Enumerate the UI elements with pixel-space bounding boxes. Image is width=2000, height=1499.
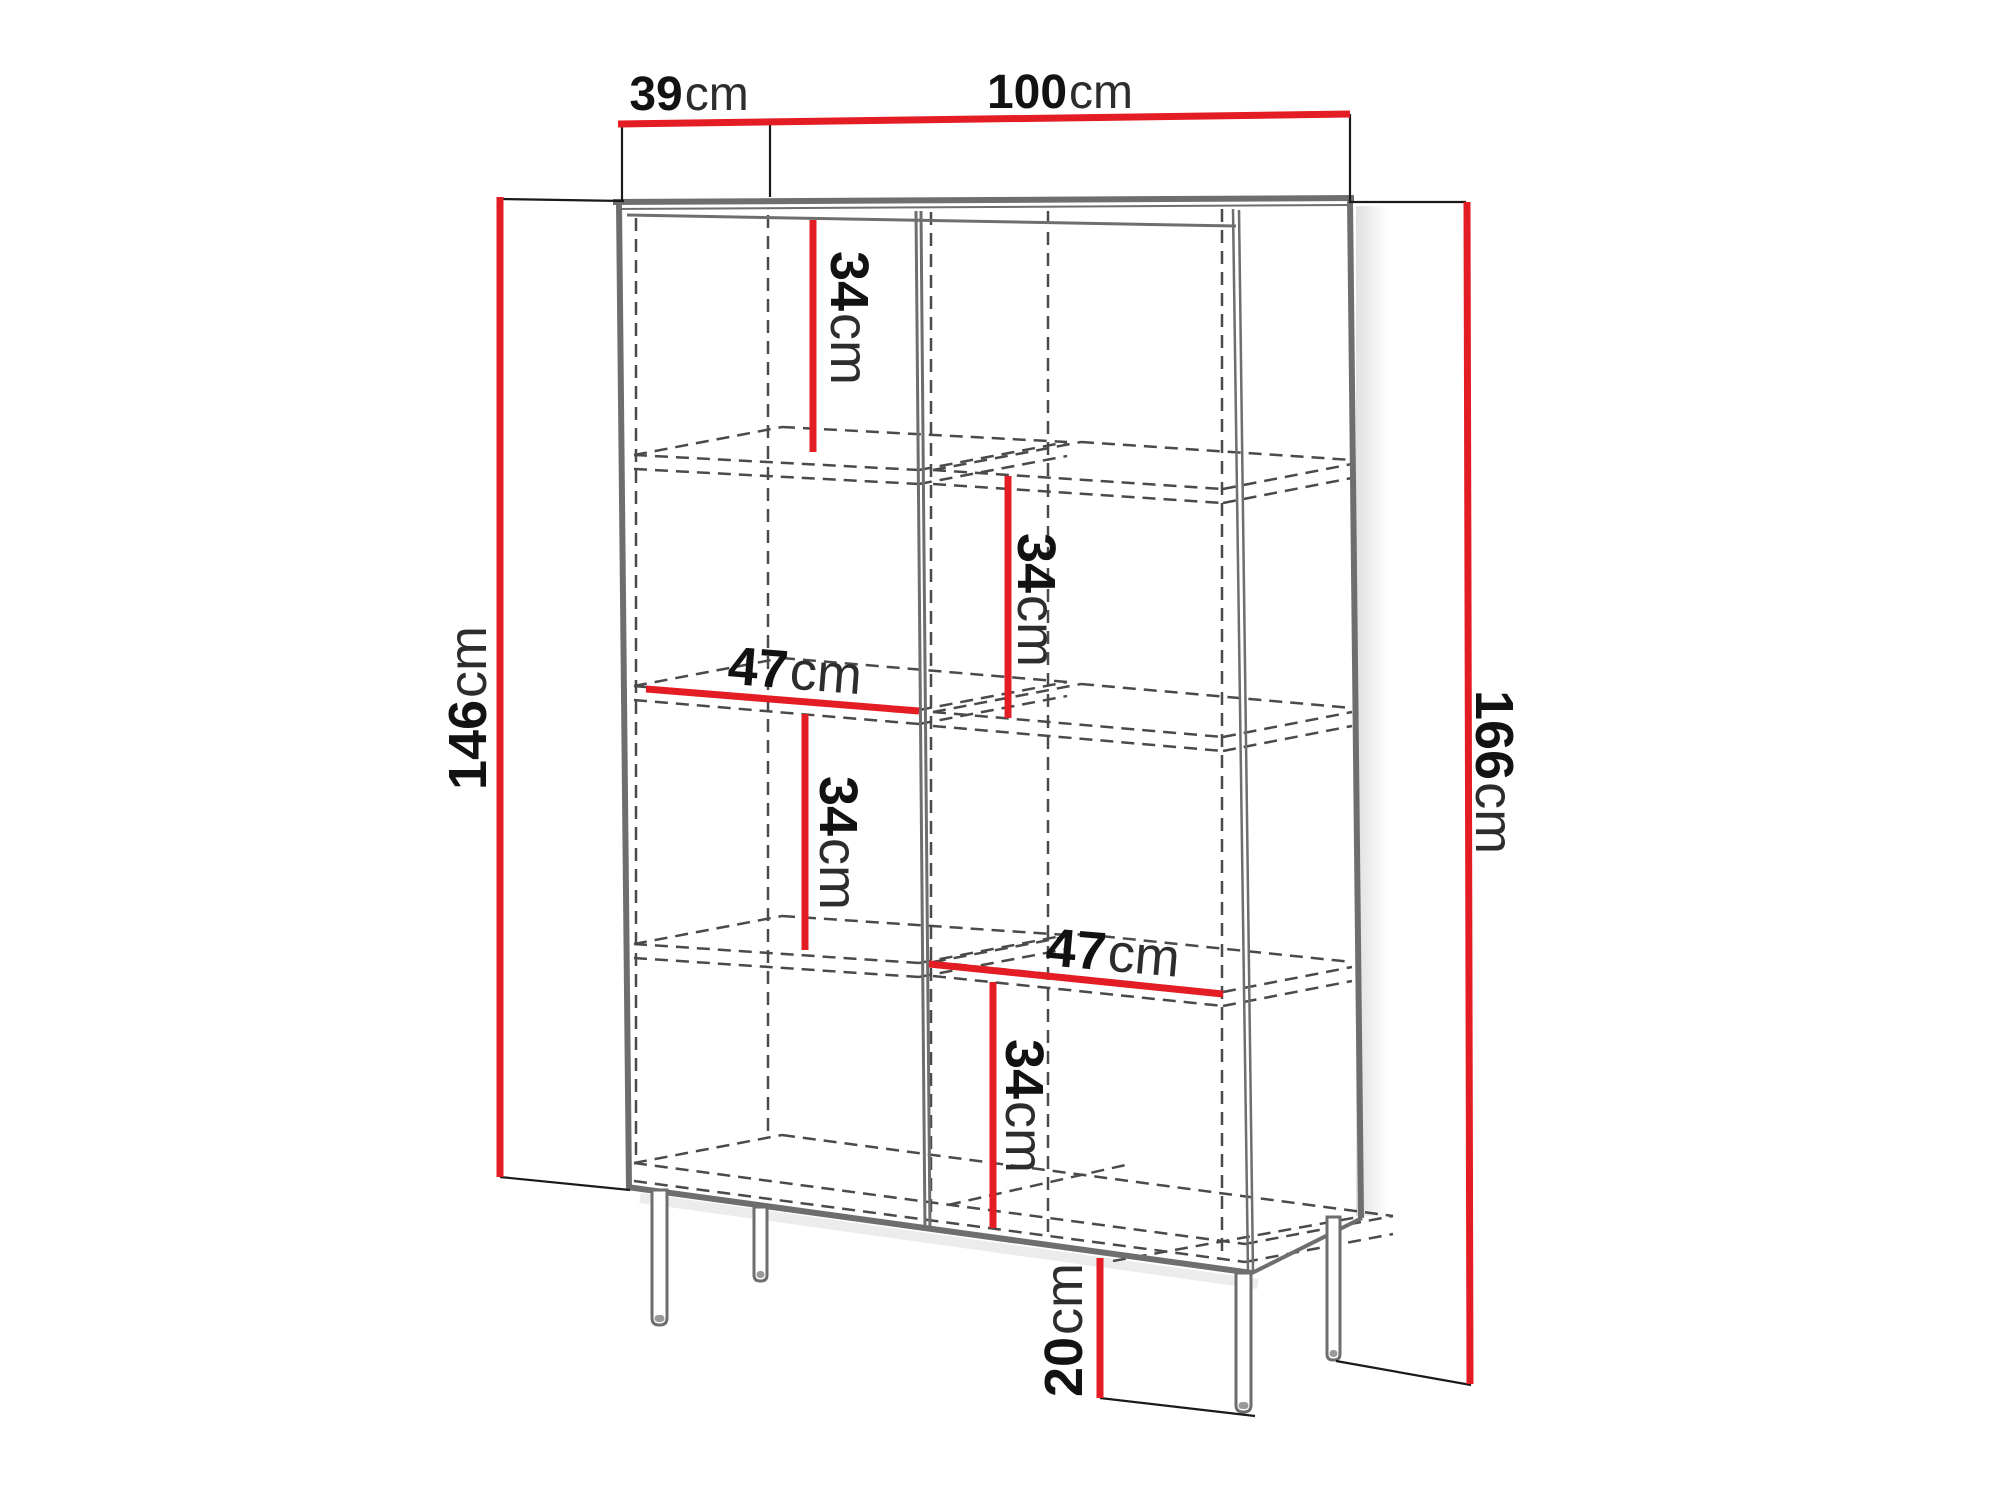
furniture-dimension-diagram: 39cm100cm146cm166cm34cm34cm34cm34cm47cm4…: [0, 0, 2000, 1499]
front-right-leg-foot-cap: [1239, 1402, 1249, 1409]
dimension-label-depth: 39cm: [629, 68, 748, 121]
rear-right-leg-foot-cap: [1330, 1350, 1338, 1357]
dimension-label-shelf-a: 34cm: [819, 251, 879, 385]
cabinet-diagram-svg: 39cm100cm146cm166cm34cm34cm34cm34cm47cm4…: [0, 0, 2000, 1499]
cabinet-rear-left-leg: [754, 1207, 767, 1281]
dimension-label-shelf-c: 34cm: [808, 776, 868, 910]
front-left-leg-foot-cap: [655, 1315, 665, 1322]
dimension-label-width: 100cm: [987, 66, 1133, 119]
dimension-label-inner-width-right: 47cm: [1044, 917, 1183, 988]
dimension-label-total-height: 166cm: [1464, 690, 1524, 854]
dimension-label-shelf-b: 34cm: [1006, 533, 1066, 667]
dimension-label-body-height: 146cm: [438, 626, 498, 790]
dimension-label-shelf-d: 34cm: [994, 1039, 1054, 1173]
dimension-label-leg-height: 20cm: [1034, 1263, 1094, 1397]
cabinet-top-outer-edge: [613, 198, 1354, 202]
rear-left-leg-foot-cap: [757, 1271, 765, 1278]
background: [0, 0, 2000, 1499]
cabinet-front-right-leg: [1236, 1273, 1251, 1412]
cabinet-front-left-leg: [652, 1190, 667, 1325]
dimension-label-inner-width-left: 47cm: [726, 636, 864, 706]
cabinet-rear-right-leg: [1327, 1217, 1340, 1360]
